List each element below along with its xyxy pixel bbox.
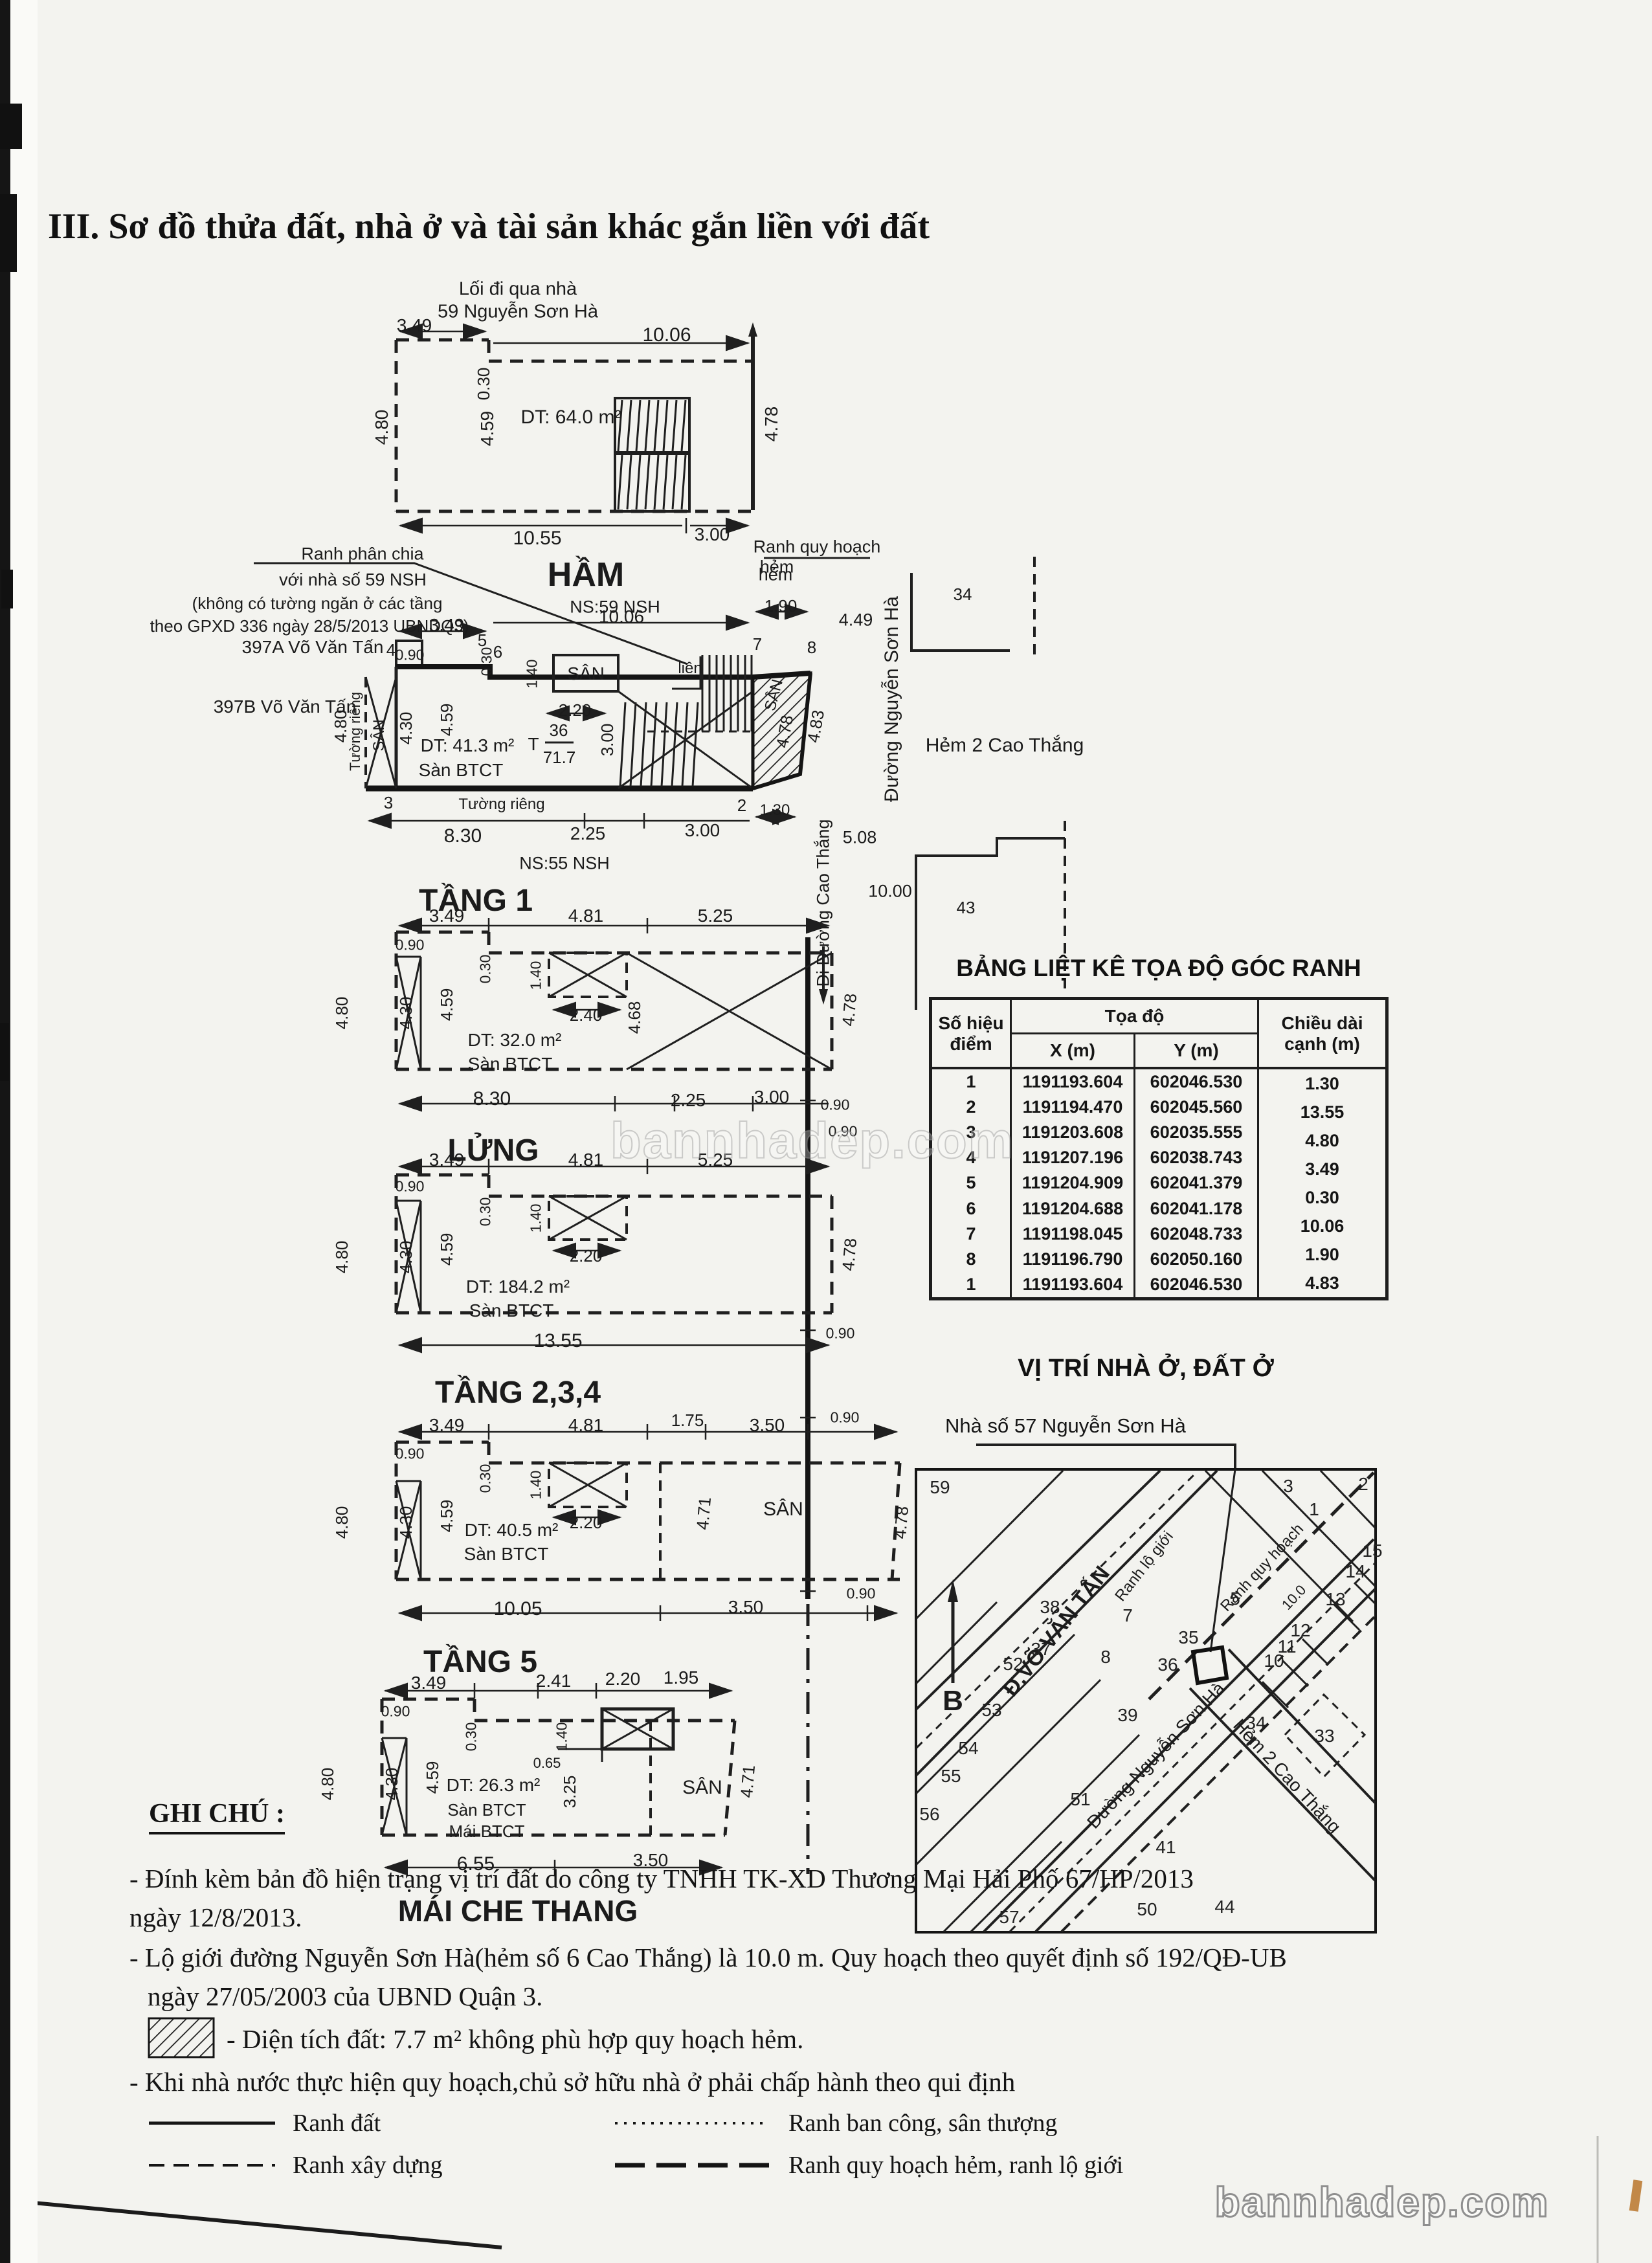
edge-length: 1.30 xyxy=(1259,1074,1385,1094)
coord-cell: 1191207.196 xyxy=(1011,1145,1135,1170)
dim-label: 4.59 xyxy=(424,1761,441,1794)
area-label: DT: 41.3 m² xyxy=(421,737,515,755)
point-number: 3 xyxy=(384,794,393,811)
dim-label: 0.90 xyxy=(821,1098,850,1113)
point-number: 7 xyxy=(753,636,762,652)
col-header-point: Số hiệu điểm xyxy=(931,999,1011,1069)
parcel-number: 14 xyxy=(1345,1561,1365,1582)
dim-label: 1.40 xyxy=(529,1471,544,1500)
dim-label: 3.49 xyxy=(429,616,465,634)
edge-length: 3.49 xyxy=(1259,1159,1385,1179)
dim-label: 10.05 xyxy=(493,1600,542,1619)
dim-label: 0.90 xyxy=(847,1587,876,1601)
passage-note: Lối đi qua nhà xyxy=(459,280,577,299)
wall-label: Tường riêng xyxy=(458,797,544,812)
dim-label: 0.90 xyxy=(831,1410,860,1425)
floor-name: MÁI CHE THANG xyxy=(398,1896,638,1926)
structure-label: Sàn BTCT xyxy=(464,1545,549,1563)
dim-label: 2.20 xyxy=(570,1247,603,1264)
watermark: bannhadep.com xyxy=(1215,2178,1550,2226)
boundary-note: Ranh phân chia xyxy=(301,546,423,563)
boundary-note: (không có tường ngăn ở các tầng xyxy=(192,595,443,612)
dim-label: 4.59 xyxy=(478,411,497,447)
dim-label: 2.25 xyxy=(570,825,606,843)
coord-cell: 7 xyxy=(931,1221,1011,1247)
floor-name: HẦM xyxy=(548,558,624,592)
yard-label: SÂN xyxy=(567,665,605,683)
scan-artifact xyxy=(0,1023,9,1081)
parcel-number: 38 xyxy=(1040,1597,1060,1618)
dim-label: 10.06 xyxy=(642,326,691,345)
dim-label: 3.00 xyxy=(685,821,720,840)
scan-artifact xyxy=(0,194,17,272)
parcel-number: 15 xyxy=(1362,1541,1382,1561)
parcel-number: 36 xyxy=(1157,1655,1178,1675)
dim-label: 4.81 xyxy=(568,1151,604,1169)
north-label: B xyxy=(943,1687,963,1715)
parcel-number: 3 xyxy=(1283,1476,1293,1497)
scan-edge xyxy=(0,0,10,2263)
coord-cell: 602035.555 xyxy=(1135,1120,1258,1145)
edge-length: 4.80 xyxy=(1259,1131,1385,1151)
parcel-number: 33 xyxy=(1314,1726,1334,1746)
parcel-number: 1 xyxy=(1309,1499,1319,1520)
edge-length-column: 1.3013.554.803.490.3010.061.904.83 xyxy=(1258,1068,1387,1299)
scan-artifact xyxy=(1,570,13,608)
parcel-number: 54 xyxy=(958,1738,978,1759)
edge-length: 10.06 xyxy=(1259,1216,1385,1236)
dim-label: 4.71 xyxy=(694,1497,713,1531)
coord-cell: 602048.733 xyxy=(1135,1221,1258,1247)
coord-cell: 6 xyxy=(931,1196,1011,1221)
dim-label: 0.90 xyxy=(396,1447,425,1462)
dim-label: 1.95 xyxy=(664,1669,699,1687)
scanned-document-page: III. Sơ đồ thửa đất, nhà ở và tài sản kh… xyxy=(0,0,1652,2263)
parcel-number: 55 xyxy=(941,1766,961,1787)
coord-cell: 8 xyxy=(931,1247,1011,1272)
dim-label: 13.55 xyxy=(533,1332,582,1351)
note-item: - Khi nhà nước thực hiện quy hoạch,chủ s… xyxy=(129,2066,1015,2097)
parcel-number: 53 xyxy=(981,1700,1001,1721)
area-label: DT: 184.2 m² xyxy=(466,1278,570,1296)
parcel-number: 37 xyxy=(1031,1639,1051,1660)
dim-label: 4.59 xyxy=(438,1233,455,1266)
parcel-number: 50 xyxy=(1137,1899,1157,1920)
dim-label: 4.80 xyxy=(333,1241,350,1274)
col-header-x: X (m) xyxy=(1011,1034,1135,1069)
edge-length: 1.90 xyxy=(1259,1245,1385,1265)
neighbor-label: 397A Võ Văn Tấn xyxy=(242,638,384,656)
dim-label: 4.30 xyxy=(383,1768,400,1801)
coord-cell: 1191193.604 xyxy=(1011,1068,1135,1095)
area-label: DT: 40.5 m² xyxy=(465,1521,559,1539)
coord-cell: 602041.379 xyxy=(1135,1170,1258,1196)
legend-ranh-xay-dung: Ranh xây dựng xyxy=(293,2151,443,2179)
dim-label: 8.30 xyxy=(473,1089,511,1109)
dim-label: 3.00 xyxy=(599,724,616,757)
dim-label: 3.25 xyxy=(561,1776,578,1809)
dim-label: 3.00 xyxy=(695,526,730,544)
neighbor-label: NS:55 NSH xyxy=(519,855,610,873)
street-annotation: 10.00 xyxy=(868,883,912,900)
street-label: Đi Đường Cao Thắng xyxy=(815,819,832,987)
dim-label: 4.78 xyxy=(840,993,859,1027)
dim-label: 10.55 xyxy=(513,529,561,548)
parcel-number: 41 xyxy=(1155,1837,1176,1858)
parcel-number: 8 xyxy=(1100,1647,1111,1667)
coord-cell: 1191198.045 xyxy=(1011,1221,1135,1247)
note-item: - Đính kèm bản đồ hiện trạng vị trí đất … xyxy=(129,1863,1194,1894)
structure-label: Mái BTCT xyxy=(449,1823,525,1840)
coord-cell: 1191204.688 xyxy=(1011,1196,1135,1221)
point-number: 2 xyxy=(737,797,746,814)
dim-label: 0.30 xyxy=(480,647,495,676)
yard-label: SÂN xyxy=(682,1778,722,1798)
parcel-number: 34 xyxy=(1245,1713,1266,1733)
parcel-number: 57 xyxy=(999,1907,1019,1928)
dim-label: 0.90 xyxy=(826,1326,855,1341)
map-note: Nhà số 57 Nguyễn Sơn Hà xyxy=(945,1414,1186,1438)
dim-label: 1.75 xyxy=(671,1412,704,1429)
dim-label: 4.71 xyxy=(738,1765,757,1799)
coord-cell: 602045.560 xyxy=(1135,1095,1258,1120)
parcel-number: 34 xyxy=(954,586,972,603)
dim-label: 4.68 xyxy=(626,1001,643,1034)
structure-label: Sàn BTCT xyxy=(468,1055,553,1073)
street-annotation: 5.08 xyxy=(843,829,877,847)
planning-boundary-label: Ranh quy hoạch xyxy=(753,539,881,556)
dim-label: 4.81 xyxy=(568,1416,604,1434)
coord-cell: 1191193.604 xyxy=(1011,1272,1135,1299)
dim-label: 2.20 xyxy=(570,1514,603,1531)
coord-cell: 1191204.909 xyxy=(1011,1170,1135,1196)
dim-label: 1.30 xyxy=(760,803,790,818)
page-title: III. Sơ đồ thửa đất, nhà ở và tài sản kh… xyxy=(48,206,1407,247)
dim-label: 0.30 xyxy=(478,1464,493,1493)
dim-label: 3.50 xyxy=(728,1598,764,1616)
note-item-hatch: - Diện tích đất: 7.7 m² không phù hợp qu… xyxy=(227,2023,803,2055)
dim-label: 3.49 xyxy=(429,1151,465,1169)
dim-label: 2.40 xyxy=(570,1007,603,1023)
dim-label: 3.49 xyxy=(397,317,432,335)
parcel-number: 56 xyxy=(919,1804,939,1825)
alley-label: hẻm xyxy=(760,559,794,576)
legend-ranh-ban-cong: Ranh ban công, sân thượng xyxy=(788,2109,1057,2137)
street-label: Đường Nguyễn Sơn Hà xyxy=(882,596,902,802)
area-label: DT: 26.3 m² xyxy=(447,1776,541,1794)
boundary-note: theo GPXD 336 ngày 28/5/2013 UBNDQ3) xyxy=(150,618,469,634)
dim-label: 4.78 xyxy=(891,1506,911,1540)
dim-label: 4.30 xyxy=(397,1241,414,1274)
coord-cell: 1 xyxy=(931,1272,1011,1299)
dim-label: 3.49 xyxy=(429,907,465,925)
legend-ranh-dat: Ranh đất xyxy=(293,2109,381,2137)
dim-label: T xyxy=(528,735,539,753)
parcel-number: 59 xyxy=(930,1477,950,1498)
dim-label: 0.30 xyxy=(478,955,493,984)
yard-label: SÂN xyxy=(372,719,387,751)
table-row: 11191193.604602046.5301.3013.554.803.490… xyxy=(931,1068,1387,1095)
dim-label: 3.49 xyxy=(429,1416,465,1434)
map-title: VỊ TRÍ NHÀ Ở, ĐẤT Ở xyxy=(919,1354,1372,1383)
edge-length: 13.55 xyxy=(1259,1102,1385,1122)
parcel-number: 2 xyxy=(1358,1474,1368,1495)
coord-cell: 1191203.608 xyxy=(1011,1120,1135,1145)
passage-note: 59 Nguyễn Sơn Hà xyxy=(438,303,598,322)
coord-cell: 602038.743 xyxy=(1135,1145,1258,1170)
col-header-length: Chiều dài cạnh (m) xyxy=(1258,999,1387,1069)
parcel-number: 35 xyxy=(1178,1627,1198,1648)
area-label: DT: 32.0 m² xyxy=(468,1031,562,1049)
parcel-number: 12 xyxy=(1290,1620,1310,1641)
structure-label: Sàn BTCT xyxy=(469,1302,554,1320)
dim-label: 2.25 xyxy=(671,1091,706,1109)
dim-label: 4.30 xyxy=(397,712,414,745)
dim-label: 4.30 xyxy=(397,1506,414,1539)
point-number: 4 xyxy=(386,641,396,658)
parcel-number: 43 xyxy=(957,899,976,916)
col-header-coord: Tọa độ xyxy=(1011,999,1258,1034)
neighbor-label: 397B Võ Văn Tấn xyxy=(214,698,357,716)
coord-cell: 5 xyxy=(931,1170,1011,1196)
note-item: ngày 27/05/2003 của UBND Quận 3. xyxy=(148,1981,542,2012)
parcel-number: 5 xyxy=(1230,1589,1240,1609)
dim-label: 36 xyxy=(550,722,568,739)
parcel-number: 52 xyxy=(1003,1654,1023,1675)
street-label: Hẻm 2 Cao Thắng xyxy=(926,736,1084,755)
dim-label: 4.59 xyxy=(438,704,455,737)
area-label: DT: 64.0 m² xyxy=(520,408,621,427)
col-header-y: Y (m) xyxy=(1135,1034,1258,1069)
yard-label: SÂN xyxy=(763,1500,803,1519)
watermark: bannhadep.com xyxy=(610,1111,1014,1170)
street-annotation: 4.49 xyxy=(839,612,873,629)
dim-label: 0.90 xyxy=(396,938,425,953)
dim-label: 3.50 xyxy=(750,1416,785,1434)
coord-cell: 1 xyxy=(931,1068,1011,1095)
notes-heading: GHI CHÚ : xyxy=(149,1798,285,1834)
dim-label: 0.30 xyxy=(464,1722,479,1752)
scan-margin xyxy=(10,0,38,2263)
dim-label: 5.25 xyxy=(698,907,733,925)
point-number: 5 xyxy=(478,632,487,649)
dim-label: 3.49 xyxy=(411,1674,447,1692)
dim-label: 4.80 xyxy=(333,997,350,1030)
dim-label: 0.90 xyxy=(381,1704,410,1719)
dim-label: 2.20 xyxy=(605,1670,641,1688)
boundary-note: với nhà số 59 NSH xyxy=(279,572,427,589)
structure-label: Sàn BTCT xyxy=(447,1801,526,1818)
coord-cell: 1191194.470 xyxy=(1011,1095,1135,1120)
dim-label: 4.80 xyxy=(373,410,391,445)
floor-name: TẦNG 2,3,4 xyxy=(435,1377,601,1409)
dim-label: 4.30 xyxy=(397,997,414,1030)
structure-label: Sàn BTCT xyxy=(419,761,504,779)
dim-label: 10.06 xyxy=(599,608,644,626)
edge-length: 0.30 xyxy=(1259,1188,1385,1208)
dim-label: 4.78 xyxy=(840,1238,859,1272)
dim-label: 1.90 xyxy=(765,597,798,614)
coord-cell: 602041.178 xyxy=(1135,1196,1258,1221)
dim-label: 2.20 xyxy=(559,702,592,719)
coord-cell: 602046.530 xyxy=(1135,1272,1258,1299)
dim-label: 4.59 xyxy=(438,1500,455,1533)
scan-artifact xyxy=(0,104,22,149)
parcel-number: 39 xyxy=(1117,1705,1137,1726)
dim-label: 4.80 xyxy=(333,1506,350,1539)
coord-cell: 602046.530 xyxy=(1135,1068,1258,1095)
dim-label: 4.80 xyxy=(319,1768,336,1801)
coordinate-table-title: BẢNG LIỆT KÊ TỌA ĐỘ GÓC RANH xyxy=(906,955,1411,982)
dim-label: 1.40 xyxy=(529,1204,544,1233)
dim-label: 1.40 xyxy=(555,1722,570,1752)
dim-label: 71.7 xyxy=(543,749,576,766)
dim-label: 0.90 xyxy=(396,1179,425,1194)
dim-label: 4.59 xyxy=(438,988,455,1021)
dim-label: 0.90 xyxy=(396,648,425,663)
dim-label: 4.78 xyxy=(763,407,781,442)
coord-cell: 1191196.790 xyxy=(1011,1247,1135,1272)
dim-label: 8.30 xyxy=(444,827,482,846)
legend-ranh-quy-hoach: Ranh quy hoạch hẻm, ranh lộ giới xyxy=(788,2151,1123,2179)
dim-label: 3.00 xyxy=(754,1088,790,1106)
dim-label: 0.30 xyxy=(478,1198,493,1227)
point-number: 8 xyxy=(807,639,816,656)
dim-label: 4.81 xyxy=(568,907,604,925)
dim-label: liên xyxy=(678,661,702,676)
parcel-number: 51 xyxy=(1070,1789,1090,1810)
parcel-number: 7 xyxy=(1122,1605,1133,1626)
parcel-number: 44 xyxy=(1214,1897,1234,1917)
note-item: ngày 12/8/2013. xyxy=(129,1902,302,1933)
dim-label: 0.65 xyxy=(533,1756,561,1770)
edge-length: 4.83 xyxy=(1259,1273,1385,1293)
note-item: - Lộ giới đường Nguyễn Sơn Hà(hẻm số 6 C… xyxy=(129,1942,1287,1973)
dim-label: 2.41 xyxy=(536,1672,572,1690)
dim-label: 1.40 xyxy=(525,660,540,689)
dim-label: 1.40 xyxy=(529,961,544,990)
dim-label: 0.30 xyxy=(475,368,492,401)
coord-cell: 602050.160 xyxy=(1135,1247,1258,1272)
parcel-number: 13 xyxy=(1325,1589,1345,1610)
